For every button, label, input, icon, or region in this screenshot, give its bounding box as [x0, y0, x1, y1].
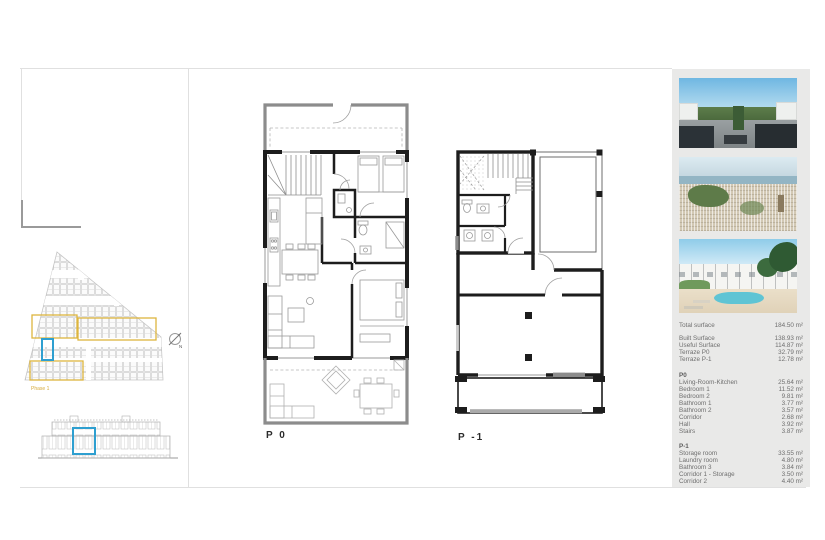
room-label: Bedroom 1 — [679, 386, 710, 393]
room-value: 25.64 m² — [778, 379, 803, 386]
room-value: 3.57 m² — [782, 407, 803, 414]
room-row: Corridor2.68 m² — [679, 414, 803, 421]
surface-label: Terraze P-1 — [679, 356, 712, 363]
room-value: 11.52 m² — [779, 386, 803, 393]
p1-void-outline — [530, 150, 603, 271]
frame-corner-vertical — [21, 200, 23, 228]
p0-dining-table — [282, 244, 318, 280]
room-label: Bathroom 1 — [679, 400, 712, 407]
room-label: Storage room — [679, 450, 717, 457]
top-rule — [20, 68, 672, 69]
room-label: Corridor 2 — [679, 478, 707, 485]
room-value: 2.68 m² — [782, 414, 803, 421]
p1-stair-bath-block — [455, 152, 533, 254]
room-value: 33.55 m² — [778, 450, 803, 457]
surface-row: Built Surface138.93 m² — [679, 335, 803, 342]
room-label: Corridor — [679, 414, 702, 421]
room-row: Corridor 1 - Storage3.50 m² — [679, 471, 803, 478]
room-row: Bedroom 111.52 m² — [679, 386, 803, 393]
surface-row: Useful Surface114.87 m² — [679, 342, 803, 349]
photo-aerial-view — [679, 157, 797, 231]
surface-value: 12.78 m² — [778, 356, 803, 363]
room-value: 4.80 m² — [782, 457, 803, 464]
brochure-page: N Phase 1 — [0, 0, 825, 540]
surface-row: Terraze P032.79 m² — [679, 349, 803, 356]
p0-bathroom2 — [338, 194, 352, 213]
surface-value: 114.87 m² — [775, 342, 803, 349]
room-value: 3.92 m² — [782, 421, 803, 428]
room-row: Bathroom 33.84 m² — [679, 464, 803, 471]
room-label: Bedroom 2 — [679, 393, 710, 400]
floor-plan-p1: P -1 — [450, 140, 610, 446]
p0-stairs — [268, 155, 321, 195]
p1-lower-terrace — [455, 376, 605, 413]
surface-table: Total surface 184.50 m² Built Surface138… — [679, 322, 803, 485]
building-elevation — [38, 416, 178, 458]
elevation-drawing — [30, 412, 185, 467]
surface-value: 138.93 m² — [775, 335, 803, 342]
room-label: Corridor 1 - Storage — [679, 471, 735, 478]
phase-label: Phase 1 — [31, 386, 50, 392]
total-surface-label: Total surface — [679, 322, 715, 329]
room-row: Storage room33.55 m² — [679, 450, 803, 457]
development-outline — [18, 240, 208, 410]
p1-storage-room — [455, 253, 602, 378]
p0-outer-walls — [262, 149, 410, 361]
p1-caption: P -1 — [458, 432, 484, 443]
room-label: Living-Room-Kitchen — [679, 379, 737, 386]
room-value: 3.84 m² — [782, 464, 803, 471]
p0-bedroom1-beds — [358, 156, 404, 192]
floor-plan-p0: P 0 — [256, 98, 412, 442]
photo-roof-terrace — [679, 78, 797, 148]
room-label: Laundry room — [679, 457, 718, 464]
p0-kitchen — [268, 198, 322, 286]
room-row: Living-Room-Kitchen25.64 m² — [679, 379, 803, 386]
p0-bathroom1 — [358, 221, 404, 254]
left-frame-line — [21, 68, 22, 200]
bottom-rule — [20, 487, 806, 488]
p0-section-header: P0 — [679, 372, 803, 379]
room-label: Bathroom 2 — [679, 407, 712, 414]
p1-section-header: P-1 — [679, 443, 803, 450]
north-compass-icon: N — [169, 333, 182, 349]
frame-corner-horizontal — [21, 226, 81, 228]
site-plan: N Phase 1 — [18, 240, 208, 410]
p0-caption: P 0 — [266, 430, 287, 441]
p0-living-sofa — [268, 296, 314, 348]
p0-bedroom2-bed — [360, 280, 404, 342]
surface-label: Useful Surface — [679, 342, 720, 349]
surface-value: 32.79 m² — [778, 349, 803, 356]
room-label: Bathroom 3 — [679, 464, 712, 471]
surface-label: Built Surface — [679, 335, 715, 342]
p0-garden-terrace — [265, 358, 407, 423]
room-row: Hall3.92 m² — [679, 421, 803, 428]
north-label: N — [179, 344, 182, 349]
p0-roof-terrace — [265, 105, 407, 152]
p0-interior-walls — [322, 152, 407, 358]
room-row: Laundry room4.80 m² — [679, 457, 803, 464]
room-value: 3.77 m² — [782, 400, 803, 407]
photo-residences-render — [679, 239, 797, 313]
surface-label: Terraze P0 — [679, 349, 709, 356]
total-surface-value: 184.50 m² — [775, 322, 803, 329]
room-row: Bathroom 13.77 m² — [679, 400, 803, 407]
room-value: 3.50 m² — [782, 471, 803, 478]
room-label: Stairs — [679, 428, 695, 435]
room-value: 4.40 m² — [782, 478, 803, 485]
total-surface-row: Total surface 184.50 m² — [679, 322, 803, 329]
room-row: Stairs3.87 m² — [679, 428, 803, 435]
room-label: Hall — [679, 421, 690, 428]
room-value: 9.81 m² — [782, 393, 803, 400]
room-row: Bathroom 23.57 m² — [679, 407, 803, 414]
surface-row: Terraze P-112.78 m² — [679, 356, 803, 363]
room-row: Bedroom 29.81 m² — [679, 393, 803, 400]
room-value: 3.87 m² — [782, 428, 803, 435]
room-row: Corridor 24.40 m² — [679, 478, 803, 485]
p1-corridor-walls — [533, 253, 602, 295]
